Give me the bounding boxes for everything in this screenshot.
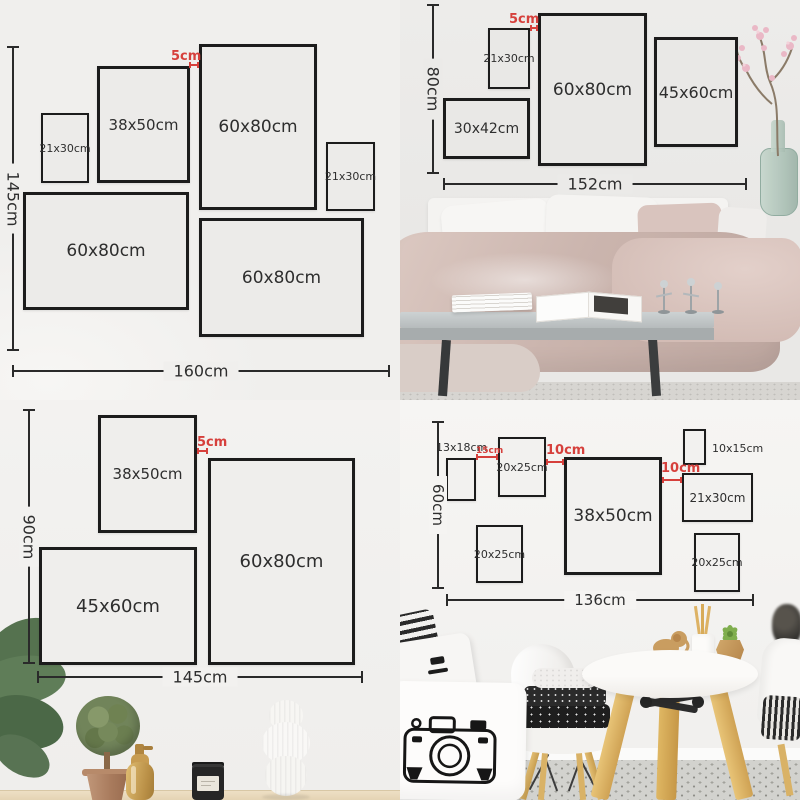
sheet-fold [400, 344, 540, 392]
cushion-camera-print [400, 681, 527, 800]
vertical-dimension-label: 80cm [424, 59, 443, 120]
picture-frame: 60x80cm [199, 218, 364, 337]
horizontal-dimension-label: 152cm [558, 175, 633, 194]
gap-label: 5cm [197, 435, 227, 450]
picture-frame: 21x30cm [41, 113, 89, 183]
gap-bracket [476, 456, 498, 458]
glass-vase [760, 148, 798, 216]
picture-frame: 38x50cm [564, 457, 662, 575]
picture-frame: 60x80cm [23, 192, 189, 310]
quadrant-bottom-left: 38x50cm 60x80cm 45x60cm 90cm 145cm 5cm [0, 400, 400, 800]
frame-size-label: 20x25cm [496, 461, 547, 474]
frame-size-label: 60x80cm [242, 268, 321, 288]
frame-size-label: 45x60cm [659, 83, 734, 102]
frame-size-label: 60x80cm [66, 241, 145, 261]
vertical-dimension-label: 145cm [4, 163, 23, 234]
frame-size-label: 60x80cm [218, 117, 297, 137]
frame-size-label: 21x30cm [325, 170, 376, 183]
frame-size-label: 10x15cm [712, 442, 763, 455]
gap-bracket [197, 450, 208, 452]
bench-front [400, 328, 714, 340]
topiary-plant [76, 696, 140, 756]
vertical-dimension-label: 90cm [20, 506, 39, 567]
picture-frame: 21x30cm [488, 28, 530, 89]
horizontal-dimension-line: 160cm [13, 370, 389, 372]
frame-set-collage: 21x30cm 38x50cm 60x80cm 21x30cm 60x80cm … [0, 0, 800, 800]
frame-size-label: 20x25cm [691, 556, 742, 569]
frame-size-label: 38x50cm [573, 506, 652, 526]
frame-size-label: 45x60cm [76, 596, 160, 617]
horizontal-dimension-line: 136cm [447, 599, 753, 601]
picture-frame: 38x50cm [97, 66, 190, 183]
picture-frame: 60x80cm [538, 13, 647, 166]
picture-frame: 38x50cm [98, 415, 197, 533]
candlestick-icon [656, 280, 672, 316]
horizontal-dimension-label: 145cm [163, 668, 238, 687]
lamp-shadow [262, 794, 310, 800]
gap-label: 15cm [476, 446, 503, 456]
book-photo [594, 296, 628, 315]
picture-frame: 20x25cm [498, 437, 546, 497]
sweater-stack [524, 686, 606, 706]
picture-frame: 30x42cm [443, 98, 530, 159]
frame-size-label: 20x25cm [474, 548, 525, 561]
horizontal-dimension-line: 152cm [444, 183, 746, 185]
gap-bracket [662, 479, 682, 481]
book-page [536, 292, 590, 323]
quadrant-top-left: 21x30cm 38x50cm 60x80cm 21x30cm 60x80cm … [0, 0, 400, 400]
candlestick-icon [710, 282, 726, 316]
frame-size-label: 21x30cm [690, 491, 746, 505]
pencil [704, 606, 711, 636]
picture-frame: 21x30cm [326, 142, 375, 211]
quadrant-top-right: 21x30cm 60x80cm 45x60cm 30x42cm 80cm 152… [400, 0, 800, 400]
picture-frame: 20x25cm [476, 525, 523, 583]
picture-frame: 45x60cm [654, 37, 738, 147]
table-hardware-bolt [640, 696, 652, 708]
table-hardware-bolt [692, 696, 704, 708]
picture-frame: 20x25cm [694, 533, 740, 592]
frame-size-label: 60x80cm [240, 551, 324, 572]
gap-label: 5cm [509, 12, 539, 27]
gap-bracket [546, 461, 564, 463]
vertical-dimension-line: 90cm [28, 410, 30, 663]
spray-nozzle [143, 746, 153, 750]
frame-size-label: 38x50cm [113, 465, 183, 483]
candlestick-icon [683, 278, 699, 316]
vertical-dimension-label: 60cm [429, 476, 447, 534]
camera-icon [400, 705, 501, 789]
gap-label: 10cm [661, 461, 700, 476]
horizontal-dimension-label: 160cm [164, 362, 239, 381]
gap-label: 10cm [546, 443, 585, 458]
bottle-highlight [131, 766, 136, 794]
picture-frame: 60x80cm [199, 44, 317, 210]
frame-size-label: 21x30cm [39, 142, 90, 155]
jar-label [197, 776, 219, 791]
open-book [536, 290, 640, 320]
picture-frame: 21x30cm [682, 473, 753, 522]
quadrant-bottom-right: 13x18cm 20x25cm 38x50cm 10x15cm 21x30cm … [400, 400, 800, 800]
frame-size-label: 38x50cm [109, 116, 179, 134]
horizontal-dimension-line: 145cm [38, 676, 362, 678]
frame-size-label: 60x80cm [553, 80, 632, 100]
picture-frame: 60x80cm [208, 458, 355, 665]
vertical-dimension-line: 80cm [432, 5, 434, 173]
knit-cushion [761, 695, 800, 742]
pencil [694, 606, 701, 636]
picture-frame: 45x60cm [39, 547, 197, 665]
vertical-dimension-line: 60cm [437, 422, 439, 588]
gap-bracket [189, 64, 199, 66]
book-stack [452, 293, 533, 313]
horizontal-dimension-label: 136cm [564, 591, 636, 609]
vertical-dimension-line: 145cm [12, 47, 14, 350]
dining-table-top [582, 650, 758, 698]
picture-frame [446, 458, 476, 501]
table-lamp-base [265, 756, 307, 796]
frame-size-label: 21x30cm [483, 52, 534, 65]
frame-size-label: 30x42cm [454, 121, 519, 137]
sweater-stack [518, 704, 610, 728]
gap-bracket [530, 27, 538, 29]
picture-frame [683, 429, 706, 465]
